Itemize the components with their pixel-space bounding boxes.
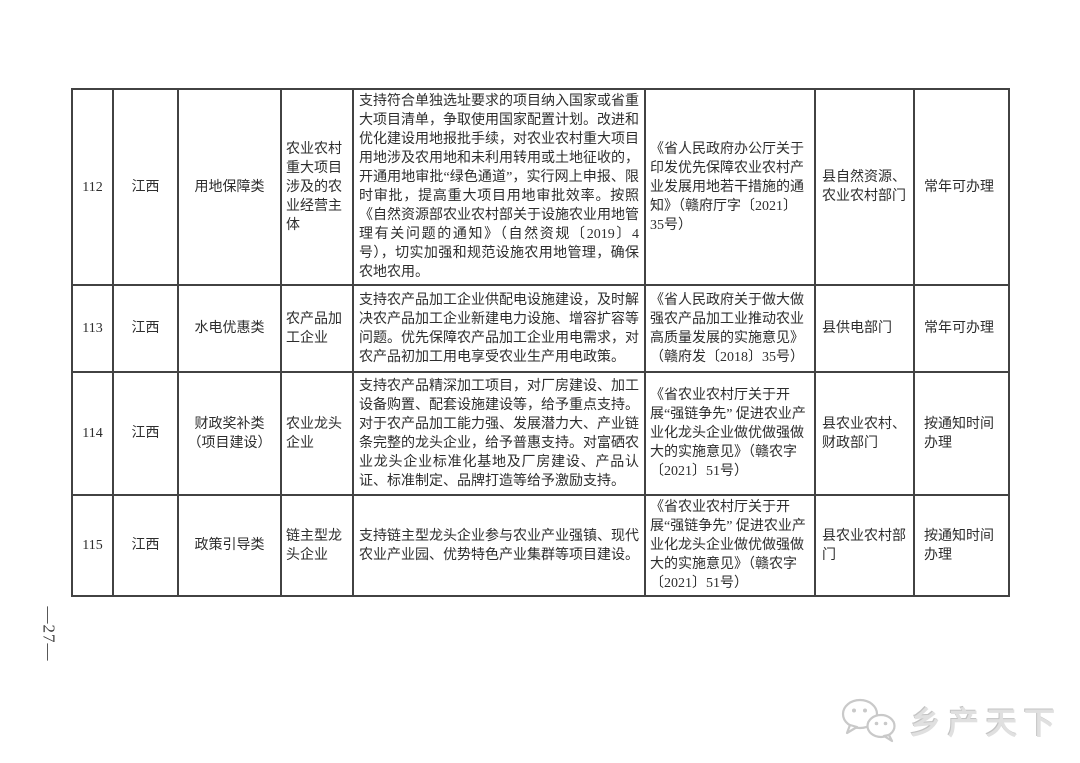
- cell-province: 江西: [113, 495, 178, 596]
- cell-province: 江西: [113, 89, 178, 285]
- table-row: 113 江西 水电优惠类 农产品加工企业 支持农产品加工企业供配电设施建设，及时…: [72, 285, 1009, 372]
- cell-department: 县农业农村部门: [815, 495, 914, 596]
- cell-department: 县农业农村、财政部门: [815, 372, 914, 495]
- cell-seq: 115: [72, 495, 113, 596]
- cell-seq: 113: [72, 285, 113, 372]
- cell-measure: 支持农产品加工企业供配电设施建设，及时解决农产品加工企业新建电力设施、增容扩容等…: [353, 285, 645, 372]
- cell-category: 用地保障类: [178, 89, 281, 285]
- chat-bubbles-icon: [836, 695, 902, 745]
- cell-seq: 114: [72, 372, 113, 495]
- cell-measure: 支持链主型龙头企业参与农业产业强镇、现代农业产业园、优势特色产业集群等项目建设。: [353, 495, 645, 596]
- cell-policy-basis: 《省人民政府关于做大做强农产品加工业推动农业高质量发展的实施意见》（赣府发〔20…: [645, 285, 815, 372]
- brand-name: 乡产天下: [910, 698, 1062, 743]
- table-row: 115 江西 政策引导类 链主型龙头企业 支持链主型龙头企业参与农业产业强镇、现…: [72, 495, 1009, 596]
- cell-category: 财政奖补类 （项目建设）: [178, 372, 281, 495]
- cell-measure: 支持符合单独选址要求的项目纳入国家或省重大项目清单，争取使用国家配置计划。改进和…: [353, 89, 645, 285]
- cell-category: 水电优惠类: [178, 285, 281, 372]
- page-number-text: —27—: [38, 607, 58, 662]
- cell-target: 农产品加工企业: [281, 285, 353, 372]
- cell-seq: 112: [72, 89, 113, 285]
- document-page: 112 江西 用地保障类 农业农村重大项目涉及的农业经营主体 支持符合单独选址要…: [0, 0, 1080, 763]
- cell-handle-time: 按通知时间办理: [914, 495, 1009, 596]
- cell-handle-time: 按通知时间办理: [914, 372, 1009, 495]
- cell-target: 链主型龙头企业: [281, 495, 353, 596]
- cell-measure: 支持农产品精深加工项目，对厂房建设、加工设备购置、配套设施建设等，给予重点支持。…: [353, 372, 645, 495]
- brand-watermark: 乡产天下: [836, 695, 1062, 745]
- table-row: 114 江西 财政奖补类 （项目建设） 农业龙头企业 支持农产品精深加工项目，对…: [72, 372, 1009, 495]
- cell-category: 政策引导类: [178, 495, 281, 596]
- cell-province: 江西: [113, 285, 178, 372]
- policy-table: 112 江西 用地保障类 农业农村重大项目涉及的农业经营主体 支持符合单独选址要…: [71, 88, 1010, 597]
- cell-handle-time: 常年可办理: [914, 89, 1009, 285]
- cell-target: 农业龙头企业: [281, 372, 353, 495]
- cell-province: 江西: [113, 372, 178, 495]
- cell-policy-basis: 《省农业农村厅关于开展“强链争先” 促进农业产业化龙头企业做优做强做大的实施意见…: [645, 495, 815, 596]
- cell-department: 县供电部门: [815, 285, 914, 372]
- cell-policy-basis: 《省农业农村厅关于开展“强链争先” 促进农业产业化龙头企业做优做强做大的实施意见…: [645, 372, 815, 495]
- cell-policy-basis: 《省人民政府办公厅关于印发优先保障农业农村产业发展用地若干措施的通知》（赣府厅字…: [645, 89, 815, 285]
- page-number: —27—: [14, 600, 82, 668]
- table-row: 112 江西 用地保障类 农业农村重大项目涉及的农业经营主体 支持符合单独选址要…: [72, 89, 1009, 285]
- cell-target: 农业农村重大项目涉及的农业经营主体: [281, 89, 353, 285]
- cell-department: 县自然资源、农业农村部门: [815, 89, 914, 285]
- cell-handle-time: 常年可办理: [914, 285, 1009, 372]
